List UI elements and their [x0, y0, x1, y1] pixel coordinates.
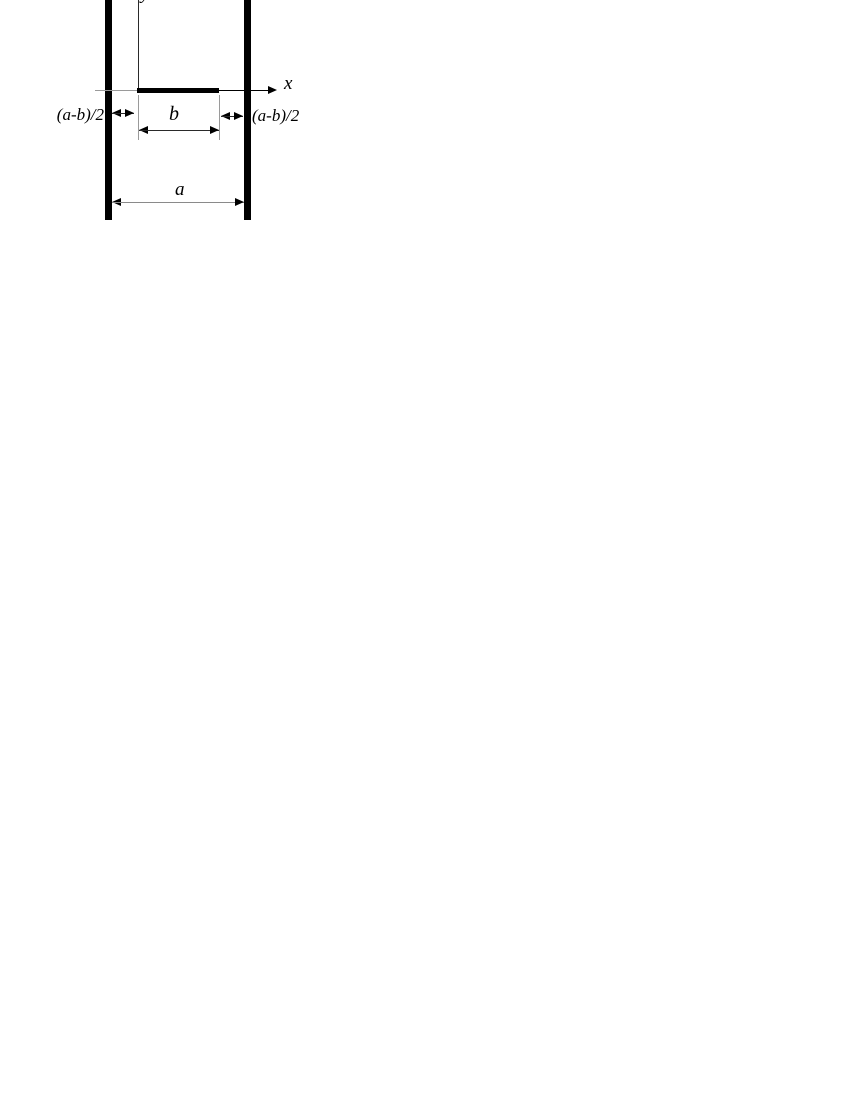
strip-width-dimension-arrow	[139, 126, 219, 135]
left-gap-label: (a-b)/2	[48, 106, 104, 123]
right-extension-line	[219, 95, 220, 140]
y-axis-label: y	[141, 0, 149, 3]
left-plate-wall	[105, 0, 112, 220]
y-axis-line	[138, 0, 139, 89]
x-axis-left-segment	[95, 90, 137, 91]
x-axis-arrowhead-icon	[268, 86, 277, 94]
dimension-shaft	[112, 202, 244, 203]
right-arrowhead-icon	[125, 109, 134, 117]
right-arrowhead-icon	[234, 112, 243, 120]
right-arrowhead-icon	[235, 198, 244, 206]
plate-width-dimension-arrow	[112, 198, 244, 207]
left-gap-dimension-arrow	[112, 109, 134, 118]
right-plate-wall	[244, 0, 251, 220]
x-axis-line	[219, 90, 269, 91]
figure-canvas: y x (a-b)/2 (a-b)/2 b a	[0, 0, 850, 1100]
strip-width-label: b	[169, 104, 179, 124]
plate-width-label: a	[175, 180, 185, 199]
x-axis-label: x	[284, 74, 292, 93]
right-gap-dimension-arrow	[221, 112, 243, 121]
right-gap-label: (a-b)/2	[252, 107, 299, 124]
strip-conductor	[137, 88, 219, 93]
dimension-shaft	[139, 130, 219, 131]
right-arrowhead-icon	[210, 126, 219, 134]
